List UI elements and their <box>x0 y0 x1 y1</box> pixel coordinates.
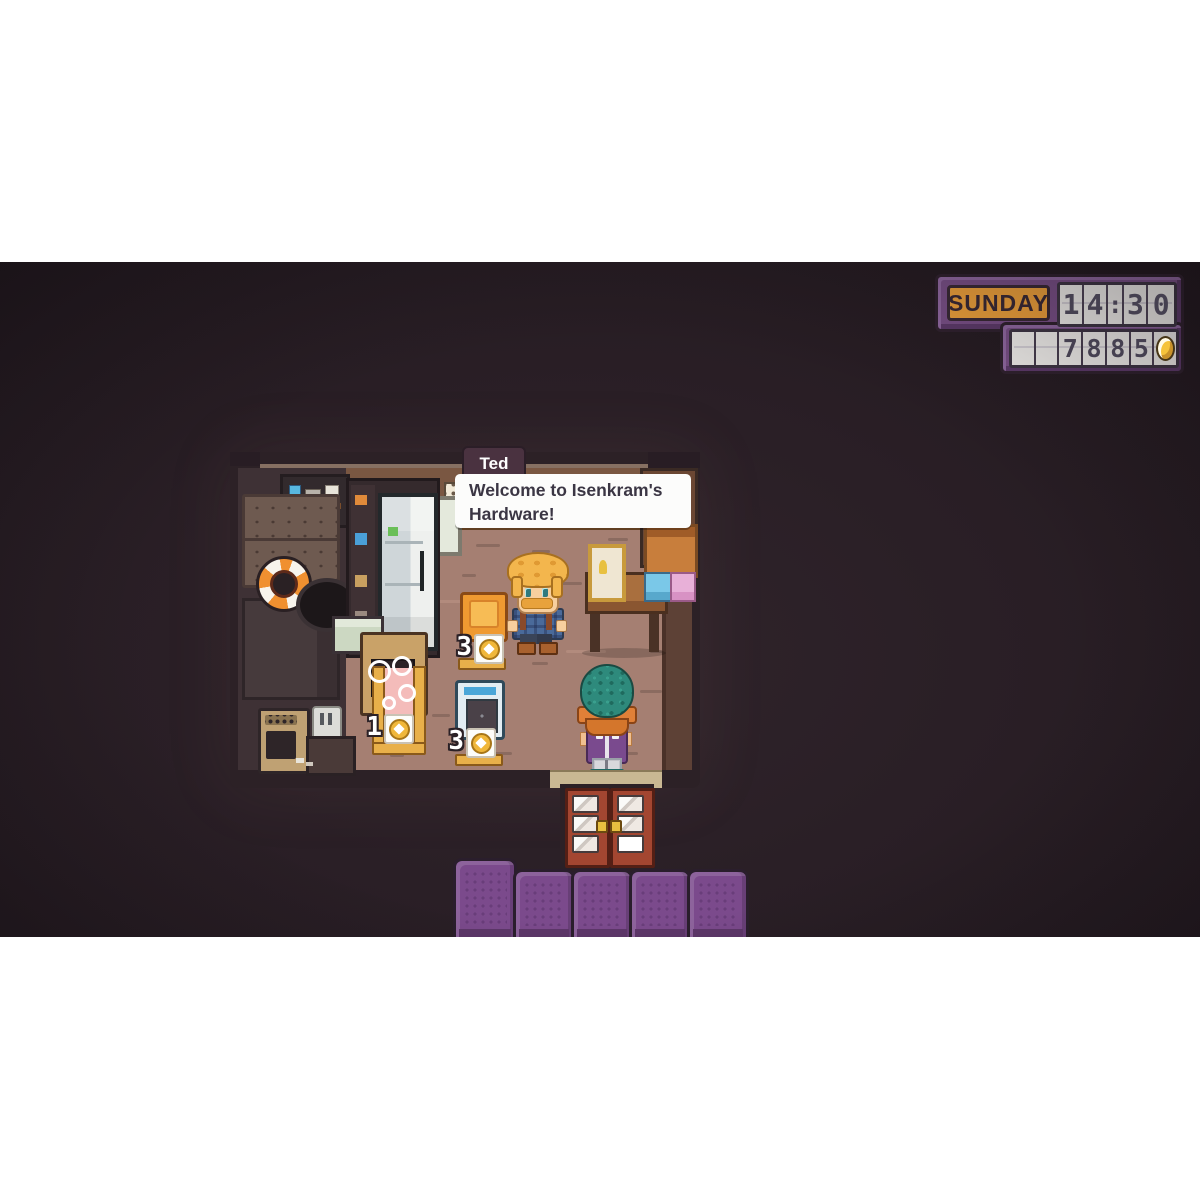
floor-debris <box>296 758 304 763</box>
npc-ted[interactable] <box>503 550 569 652</box>
door-pane <box>572 815 599 833</box>
money-cell-empty <box>1036 332 1060 365</box>
day-label: SUNDAY <box>948 290 1049 317</box>
entrance-door[interactable] <box>560 784 654 864</box>
shop-item-pink-bath[interactable]: 1 <box>370 666 424 758</box>
dialogue-text: Welcome to Isenkram's Hardware! <box>469 480 663 524</box>
game-viewport: 3 1 <box>0 262 1200 937</box>
glass-shelf-line <box>385 541 423 544</box>
coin-icon <box>389 719 410 740</box>
floor-mark <box>532 662 548 665</box>
orange-crate <box>644 524 698 578</box>
metal-panel <box>242 494 340 542</box>
ted-boot <box>539 642 558 655</box>
room-notch <box>230 452 260 466</box>
bubble <box>368 660 391 683</box>
price-value: 3 <box>442 728 464 754</box>
door-handle <box>610 820 622 833</box>
money-display: 7 8 8 5 <box>1009 329 1179 368</box>
floor-mark <box>476 544 500 547</box>
floor-mark <box>608 538 628 541</box>
frame-flower <box>599 560 607 574</box>
money-cell-empty <box>1012 332 1036 365</box>
shop-item-orange-heater[interactable]: 3 <box>458 592 504 668</box>
price-value: 1 <box>360 714 382 740</box>
money-digit: 8 <box>1083 332 1107 365</box>
door-pane <box>572 835 599 853</box>
dialogue-box[interactable]: Welcome to Isenkram's Hardware! <box>455 474 691 528</box>
money-digit: 7 <box>1059 332 1083 365</box>
amp-knobs <box>265 715 297 725</box>
shop-item-blue-washer[interactable]: 3 <box>452 678 502 762</box>
door-pane <box>572 795 599 813</box>
money-digit: 8 <box>1107 332 1131 365</box>
picture-frame <box>588 544 626 602</box>
hud: SUNDAY 1 4 : 3 0 7 8 8 5 <box>935 272 1187 366</box>
speaker-name: Ted <box>480 454 509 474</box>
shelf-item <box>355 533 367 545</box>
floor-mark <box>432 714 450 717</box>
bubble <box>382 696 396 710</box>
ted-hand <box>507 620 518 632</box>
price-tag <box>474 634 504 664</box>
pink-bin <box>670 572 696 602</box>
player-hair <box>580 664 634 718</box>
washer-top-bar <box>464 687 496 695</box>
ted-mustache <box>521 598 553 609</box>
roof-tile <box>453 858 517 937</box>
money-digit: 5 <box>1131 332 1155 365</box>
ted-hand <box>556 620 567 632</box>
glass-shelf-line <box>385 583 423 586</box>
shelf-item <box>355 495 367 505</box>
plug-slot <box>328 713 332 725</box>
day-indicator: SUNDAY <box>947 285 1050 321</box>
money-coin-cell <box>1154 332 1176 365</box>
room-notch <box>648 452 700 468</box>
price-tag <box>466 728 496 758</box>
bubble <box>398 684 416 702</box>
price-tag <box>384 714 414 744</box>
door-handle <box>420 551 424 591</box>
ted-eye <box>525 588 531 597</box>
screenshot: 3 1 <box>0 0 1200 1200</box>
pot-body <box>585 718 629 736</box>
ted-hair-side <box>551 576 563 598</box>
glass-door <box>378 493 438 651</box>
bubble <box>392 656 412 676</box>
blue-bin <box>644 572 672 602</box>
coin-icon <box>471 733 492 754</box>
amplifier <box>258 708 310 774</box>
amp-grille <box>266 731 296 759</box>
roof-tile <box>571 869 633 937</box>
price-value: 3 <box>450 634 472 660</box>
clock-display: 1 4 : 3 0 <box>1057 282 1177 327</box>
clock-digit: 1 <box>1060 285 1084 324</box>
ted-boot <box>517 642 536 655</box>
floor-mark <box>640 690 662 693</box>
clock-digit: 0 <box>1148 285 1174 324</box>
door-pane <box>617 835 644 853</box>
floor-mark <box>462 574 476 577</box>
ted-hair-side <box>511 576 523 598</box>
bath-rail <box>413 666 426 746</box>
clock-colon: : <box>1108 285 1124 324</box>
roof-tile <box>687 869 749 937</box>
shelf-item <box>388 527 398 536</box>
coin-icon <box>479 639 500 660</box>
roof-tile <box>513 869 575 937</box>
life-ring-center <box>270 570 298 598</box>
door-handle <box>596 820 608 833</box>
ted-eye <box>542 588 548 597</box>
player-character[interactable] <box>575 664 635 774</box>
plug-slot <box>320 713 324 725</box>
shelf-item <box>355 575 367 587</box>
floor-debris <box>306 762 313 766</box>
crate <box>306 736 356 776</box>
clock-digit: 4 <box>1084 285 1108 324</box>
roof-tile <box>629 869 691 937</box>
clock-digit: 3 <box>1124 285 1148 324</box>
coin-icon <box>1156 336 1175 361</box>
heater-panel <box>469 600 499 628</box>
door-pane <box>617 795 644 813</box>
